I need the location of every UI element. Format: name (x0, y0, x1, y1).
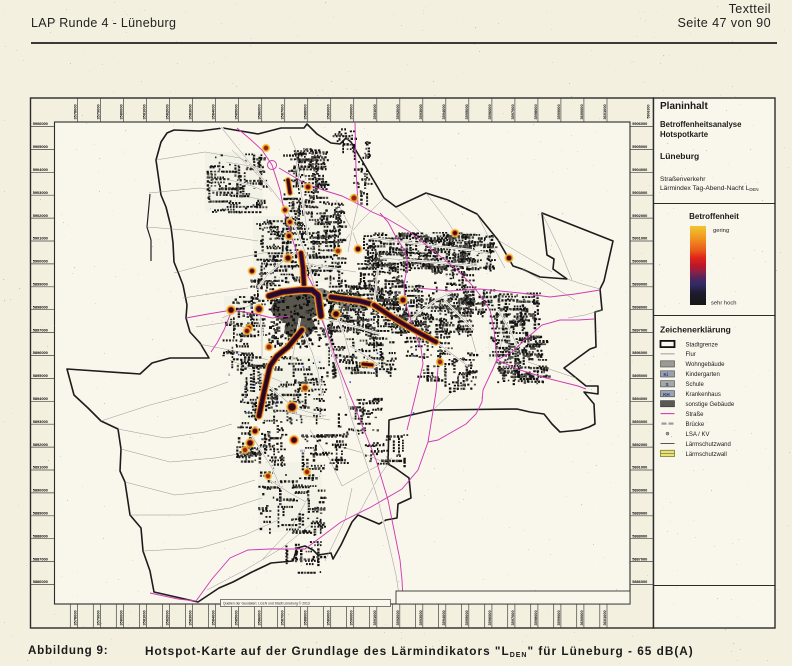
svg-text:5900000: 5900000 (33, 259, 48, 264)
svg-text:5898000: 5898000 (33, 304, 48, 309)
svg-text:3583000: 3583000 (188, 104, 193, 119)
svg-text:5887000: 5887000 (33, 556, 48, 561)
svg-text:3591000: 3591000 (372, 104, 377, 119)
svg-text:5902000: 5902000 (33, 213, 48, 218)
svg-text:Quellen der Geodaten: LGLN und: Quellen der Geodaten: LGLN und Stadt Lün… (223, 602, 310, 606)
svg-text:5886000: 5886000 (632, 579, 647, 584)
svg-text:5904000: 5904000 (33, 167, 48, 172)
svg-text:Brücke: Brücke (686, 422, 705, 428)
svg-text:3596000: 3596000 (487, 104, 492, 119)
svg-text:3600000: 3600000 (579, 610, 584, 625)
svg-text:3587000: 3587000 (280, 104, 285, 119)
svg-text:5906000: 5906000 (33, 121, 48, 126)
svg-text:3588000: 3588000 (303, 104, 308, 119)
svg-text:3599000: 3599000 (556, 104, 561, 119)
svg-text:5906300: 5906300 (647, 105, 651, 119)
svg-text:3578000: 3578000 (73, 104, 78, 119)
svg-text:5892000: 5892000 (33, 442, 48, 447)
svg-text:3588000: 3588000 (303, 610, 308, 625)
svg-text:KH: KH (663, 392, 670, 397)
svg-text:3601000: 3601000 (602, 610, 607, 625)
svg-text:3592000: 3592000 (395, 104, 400, 119)
svg-text:5890000: 5890000 (632, 488, 647, 493)
svg-text:5894000: 5894000 (632, 396, 647, 401)
svg-text:5896000: 5896000 (33, 350, 48, 355)
svg-text:5888000: 5888000 (33, 533, 48, 538)
svg-text:3600000: 3600000 (579, 104, 584, 119)
svg-text:5904000: 5904000 (632, 167, 647, 172)
svg-text:3579000: 3579000 (96, 104, 101, 119)
svg-text:5895000: 5895000 (632, 373, 647, 378)
svg-text:3579000: 3579000 (96, 610, 101, 625)
svg-text:sonstige Gebäude: sonstige Gebäude (686, 402, 735, 408)
svg-text:5894000: 5894000 (33, 396, 48, 401)
svg-text:5893000: 5893000 (33, 419, 48, 424)
svg-text:gering: gering (713, 228, 729, 234)
svg-text:5898000: 5898000 (632, 304, 647, 309)
svg-text:3581000: 3581000 (142, 104, 147, 119)
svg-text:5897000: 5897000 (33, 327, 48, 332)
svg-text:Lärmindex Tag-Abend-Nacht LDEN: Lärmindex Tag-Abend-Nacht LDEN (660, 185, 759, 192)
svg-text:3590000: 3590000 (349, 610, 354, 625)
svg-text:3582000: 3582000 (165, 104, 170, 119)
svg-text:Zeichenerklärung: Zeichenerklärung (660, 325, 731, 335)
svg-text:Lärmschutzwall: Lärmschutzwall (686, 452, 727, 458)
svg-text:5896000: 5896000 (632, 350, 647, 355)
svg-text:5903000: 5903000 (33, 190, 48, 195)
svg-text:Lärmschutzwand: Lärmschutzwand (686, 442, 731, 448)
svg-text:Wohngebäude: Wohngebäude (686, 362, 726, 368)
svg-text:3592000: 3592000 (395, 610, 400, 625)
svg-text:3584000: 3584000 (211, 104, 216, 119)
svg-text:5887000: 5887000 (632, 556, 647, 561)
svg-text:Schule: Schule (686, 382, 705, 388)
svg-text:5897000: 5897000 (632, 327, 647, 332)
svg-text:3586000: 3586000 (257, 104, 262, 119)
svg-text:3595000: 3595000 (464, 104, 469, 119)
svg-text:Betroffenheitsanalyse: Betroffenheitsanalyse (660, 120, 742, 129)
svg-text:3597000: 3597000 (510, 610, 515, 625)
svg-text:3599000: 3599000 (556, 610, 561, 625)
svg-text:5891000: 5891000 (632, 465, 647, 470)
svg-text:5889000: 5889000 (33, 511, 48, 516)
svg-text:Lüneburg: Lüneburg (660, 151, 699, 161)
svg-text:Kindergarten: Kindergarten (686, 372, 720, 378)
svg-text:5900000: 5900000 (632, 259, 647, 264)
svg-text:3594000: 3594000 (441, 104, 446, 119)
svg-text:Straße: Straße (686, 412, 705, 418)
svg-text:Betroffenheit: Betroffenheit (689, 212, 739, 221)
svg-text:3578000: 3578000 (73, 610, 78, 625)
svg-text:KH: KH (300, 449, 305, 453)
svg-text:5895000: 5895000 (33, 373, 48, 378)
svg-text:5891000: 5891000 (33, 465, 48, 470)
svg-text:Flur: Flur (686, 352, 696, 358)
svg-text:3596000: 3596000 (487, 610, 492, 625)
svg-text:3580000: 3580000 (119, 104, 124, 119)
svg-text:5901000: 5901000 (632, 236, 647, 241)
svg-text:5905000: 5905000 (33, 144, 48, 149)
svg-text:Ki: Ki (664, 372, 669, 377)
svg-text:5893000: 5893000 (632, 419, 647, 424)
svg-text:Planinhalt: Planinhalt (660, 101, 708, 112)
svg-text:3587000: 3587000 (280, 610, 285, 625)
svg-text:5906000: 5906000 (632, 121, 647, 126)
svg-text:5902000: 5902000 (632, 213, 647, 218)
svg-text:3589000: 3589000 (326, 104, 331, 119)
svg-text:5905000: 5905000 (632, 144, 647, 149)
svg-text:3584000: 3584000 (211, 610, 216, 625)
svg-text:Stadtgrenze: Stadtgrenze (686, 342, 719, 348)
svg-text:3585000: 3585000 (234, 104, 239, 119)
svg-text:3583000: 3583000 (188, 610, 193, 625)
svg-text:sehr hoch: sehr hoch (711, 301, 736, 307)
svg-text:5899000: 5899000 (632, 282, 647, 287)
svg-text:3589000: 3589000 (326, 610, 331, 625)
svg-text:5892000: 5892000 (632, 442, 647, 447)
svg-text:5888000: 5888000 (632, 533, 647, 538)
svg-text:3595000: 3595000 (464, 610, 469, 625)
svg-text:Krankenhaus: Krankenhaus (686, 392, 721, 398)
svg-text:LSA / KV: LSA / KV (686, 432, 710, 438)
svg-text:5889000: 5889000 (632, 511, 647, 516)
svg-text:3591000: 3591000 (372, 610, 377, 625)
svg-text:3593000: 3593000 (418, 610, 423, 625)
svg-text:5903000: 5903000 (632, 190, 647, 195)
svg-text:3593000: 3593000 (418, 104, 423, 119)
svg-text:3598000: 3598000 (533, 610, 538, 625)
svg-text:S: S (666, 382, 669, 387)
svg-text:5886000: 5886000 (33, 579, 48, 584)
svg-text:3590000: 3590000 (349, 104, 354, 119)
svg-text:3586000: 3586000 (257, 610, 262, 625)
svg-text:3580000: 3580000 (119, 610, 124, 625)
svg-text:3585000: 3585000 (234, 610, 239, 625)
svg-text:5890000: 5890000 (33, 488, 48, 493)
svg-text:3601000: 3601000 (602, 104, 607, 119)
svg-text:3581000: 3581000 (142, 610, 147, 625)
svg-text:3597000: 3597000 (510, 104, 515, 119)
svg-text:3598000: 3598000 (533, 104, 538, 119)
svg-text:3582000: 3582000 (165, 610, 170, 625)
svg-text:Straßenverkehr: Straßenverkehr (660, 176, 706, 183)
svg-text:5899000: 5899000 (33, 282, 48, 287)
svg-text:5901000: 5901000 (33, 236, 48, 241)
svg-text:Hotspotkarte: Hotspotkarte (660, 130, 709, 139)
svg-text:3594000: 3594000 (441, 610, 446, 625)
